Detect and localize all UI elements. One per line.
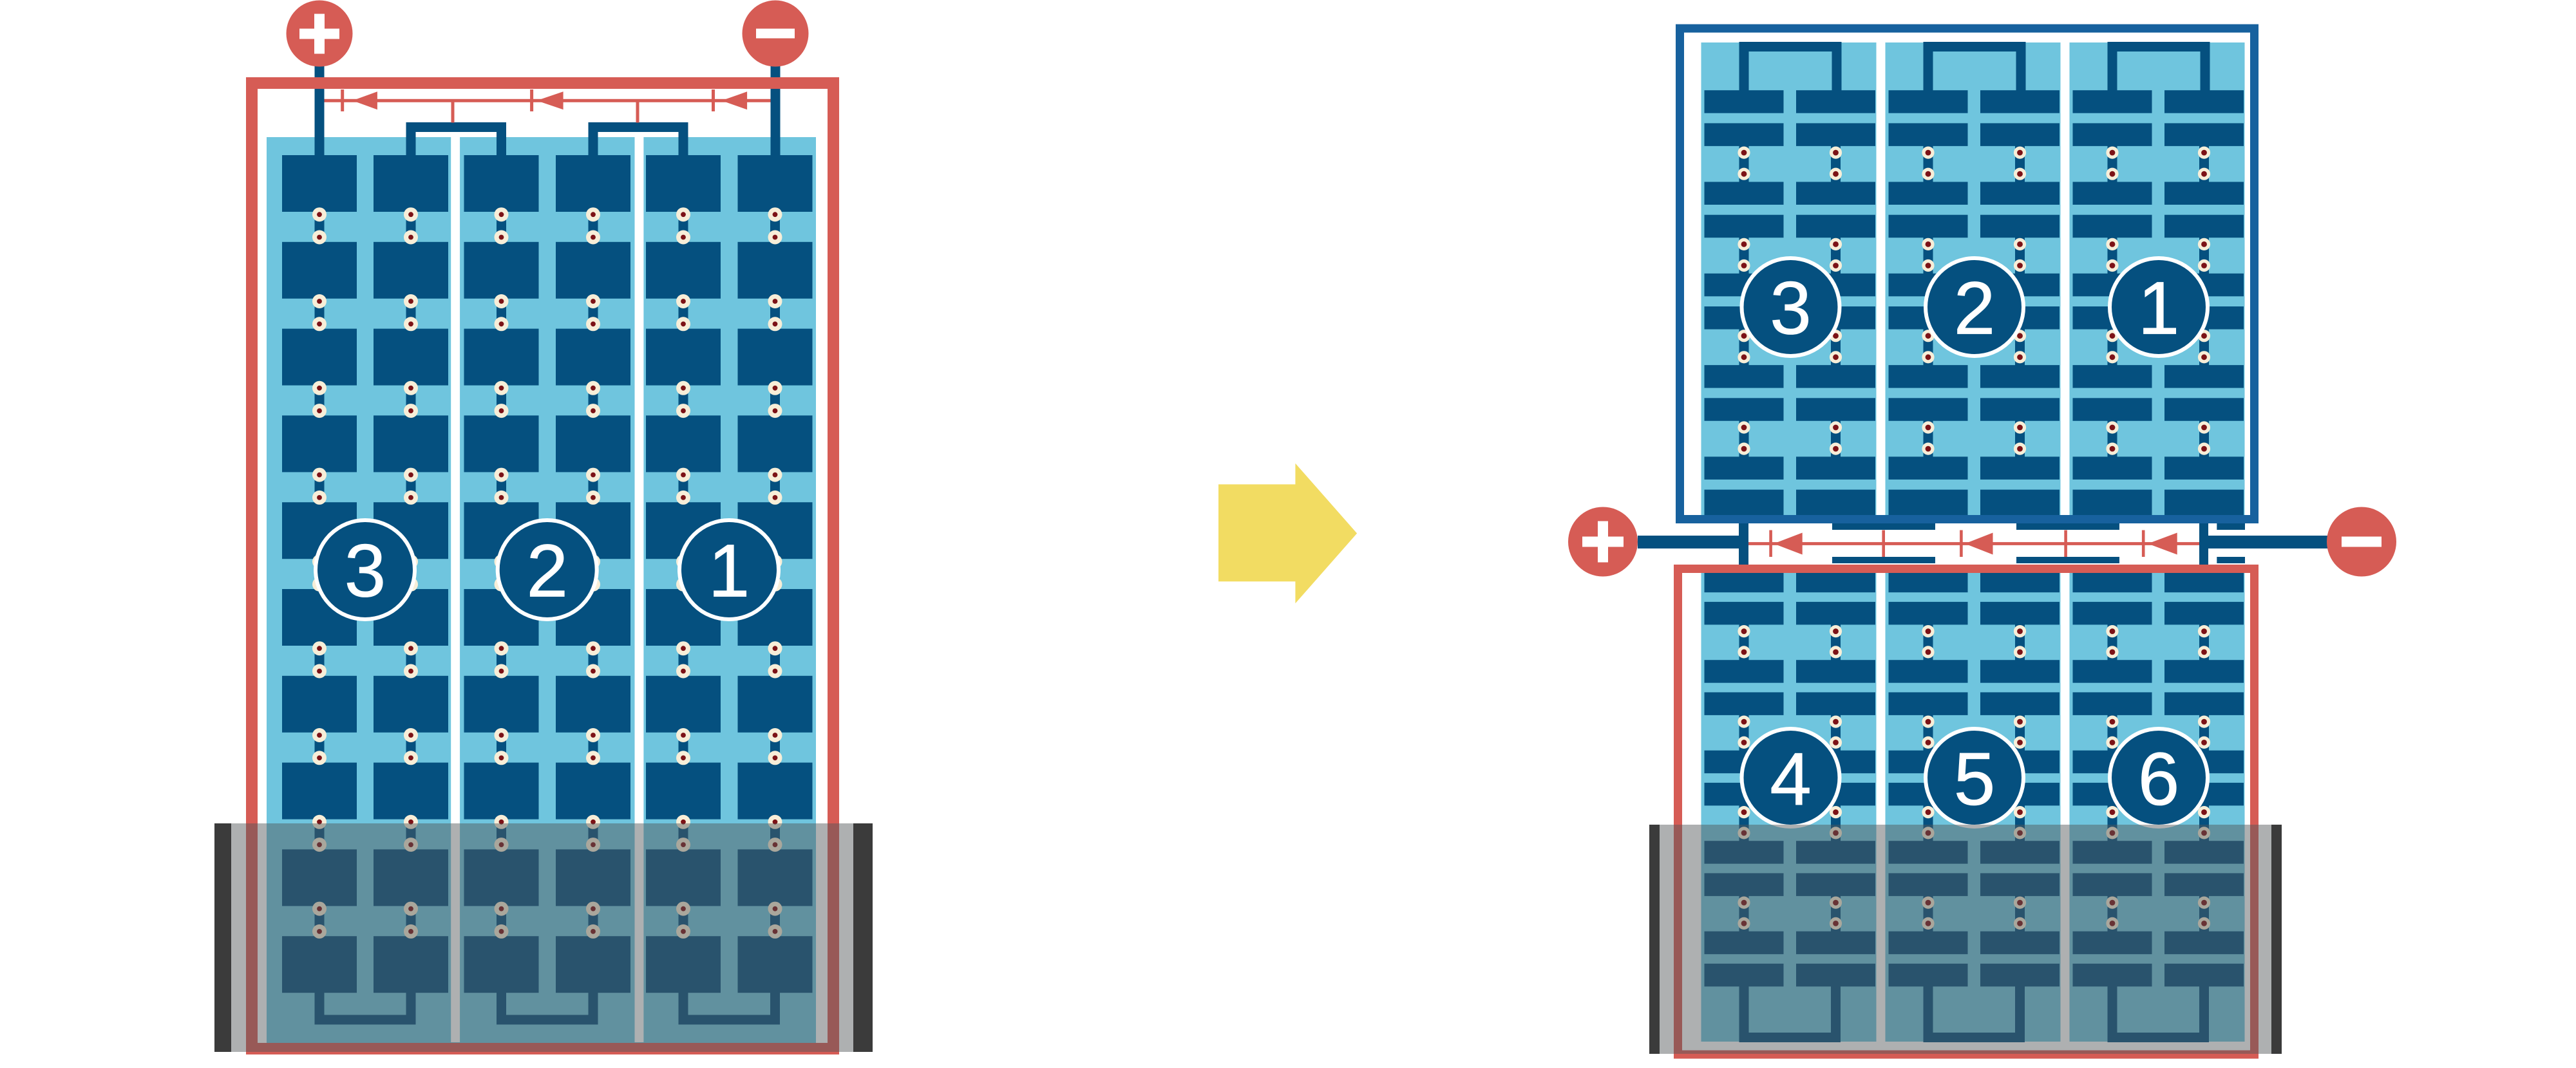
svg-text:1: 1 [708, 529, 750, 613]
svg-text:1: 1 [2138, 267, 2180, 350]
svg-text:3: 3 [1770, 267, 1812, 350]
svg-text:3: 3 [345, 529, 386, 613]
svg-text:2: 2 [1954, 267, 1996, 350]
svg-text:5: 5 [1954, 737, 1996, 821]
svg-text:2: 2 [526, 529, 568, 613]
svg-text:6: 6 [2138, 737, 2180, 821]
svg-text:4: 4 [1770, 737, 1812, 821]
